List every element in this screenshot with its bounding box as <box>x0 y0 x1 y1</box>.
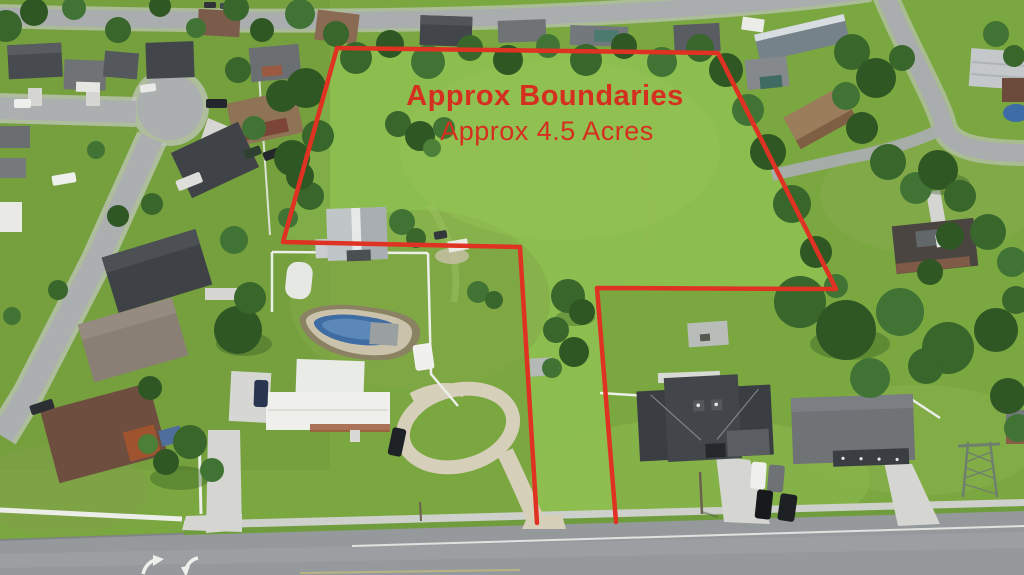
cul-de-sac <box>137 74 203 140</box>
aerial-photo: Approx Boundaries Approx 4.5 Acres <box>0 0 1024 575</box>
utility-pole <box>420 502 421 521</box>
boundary-title: Approx Boundaries <box>406 80 684 112</box>
house-b <box>791 394 915 468</box>
boundary-subtitle: Approx 4.5 Acres <box>440 116 654 146</box>
